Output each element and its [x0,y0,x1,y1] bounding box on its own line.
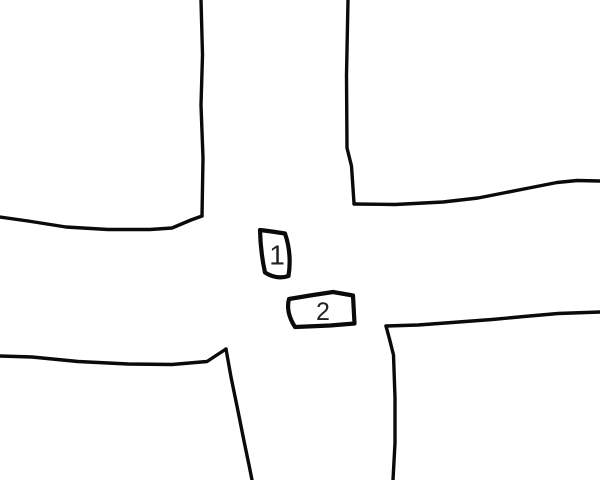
road-edge-top-right-vertical [347,0,355,203]
road-edge-top-right-horizontal [354,181,600,205]
vehicle-1: 1 [260,230,290,277]
drawing-canvas: 1 2 [0,0,600,480]
road-edge-top-left-vertical [201,0,203,216]
road-edge-bottom-right-vertical [386,326,395,480]
vehicle-2-label: 2 [316,298,330,326]
vehicle-2: 2 [288,292,354,327]
road-edge-bottom-left-horizontal [0,349,226,365]
road-outlines [0,0,600,480]
road-edge-bottom-left-vertical [226,349,252,480]
intersection-sketch: 1 2 [0,0,600,480]
road-edge-top-left-horizontal [0,216,202,230]
road-edge-bottom-right-horizontal [386,312,600,326]
vehicle-1-label: 1 [269,240,285,271]
